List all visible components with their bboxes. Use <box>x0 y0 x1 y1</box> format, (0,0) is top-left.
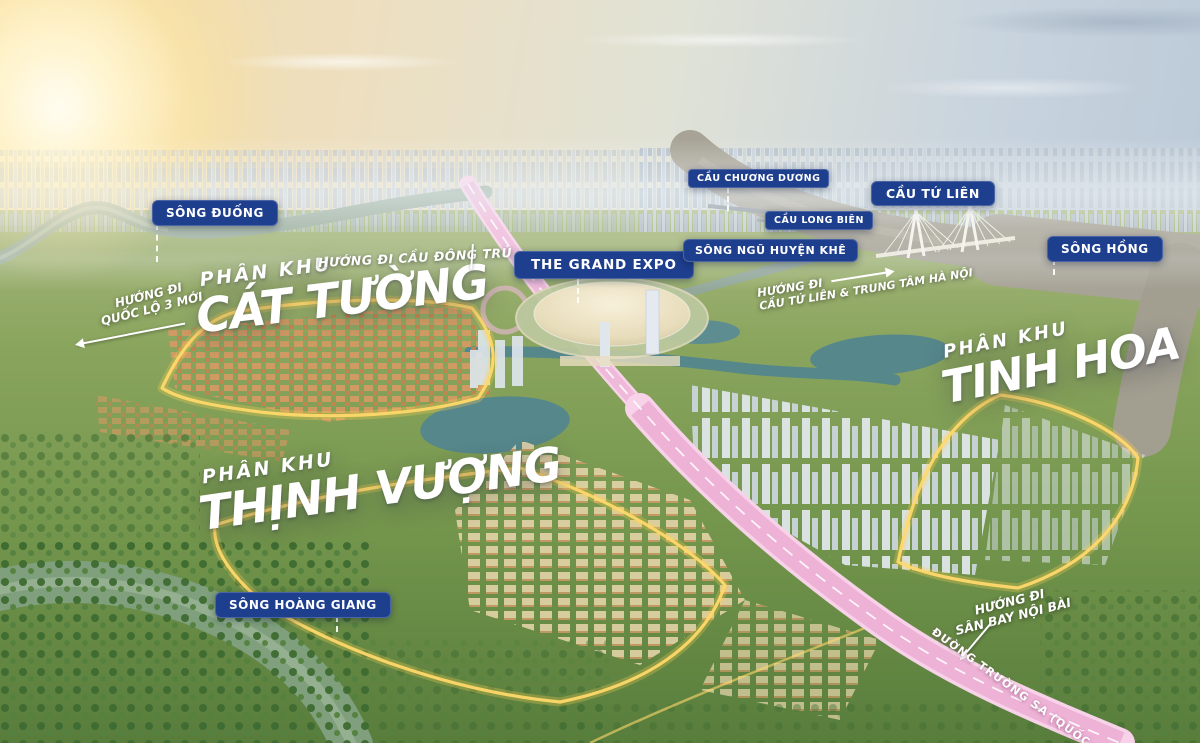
label-cau-tu-lien: CẦU TỨ LIÊN <box>871 181 995 206</box>
leader-line-song-hoang-giang <box>336 616 338 632</box>
leader-line-grand-expo <box>577 279 579 303</box>
label-cau-chuong-duong: CẦU CHƯƠNG DƯƠNG <box>688 169 829 188</box>
label-song-hoang-giang: SÔNG HOÀNG GIANG <box>215 592 391 618</box>
label-song-ngu-huyen-khe: SÔNG NGŨ HUYỆN KHÊ <box>683 239 858 262</box>
masterplan-aerial-map: SÔNG ĐUỐNG THE GRAND EXPO CẦU CHƯƠNG DƯƠ… <box>0 0 1200 743</box>
leader-line-song-duong <box>156 224 158 262</box>
label-cau-long-bien: CẦU LONG BIÊN <box>765 211 873 230</box>
label-song-hong: SÔNG HỒNG <box>1047 236 1163 262</box>
label-the-grand-expo: THE GRAND EXPO <box>514 251 694 279</box>
leader-line-cau-chuong-duong <box>727 187 729 211</box>
label-song-duong: SÔNG ĐUỐNG <box>152 200 278 226</box>
